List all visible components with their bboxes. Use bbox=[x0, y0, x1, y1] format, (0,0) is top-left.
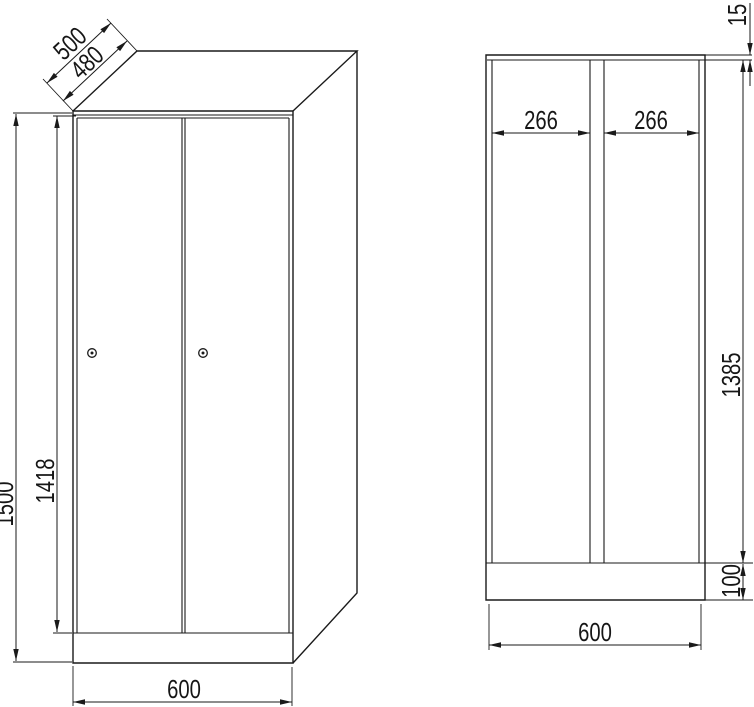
dim-interior-height-label: 1385 bbox=[717, 352, 746, 397]
section-view: 266 266 15 1385 100 600 bbox=[486, 3, 753, 650]
height-extension-lines bbox=[13, 113, 72, 662]
dim-width-perspective-group: 600 bbox=[73, 666, 292, 706]
dim-interior-height-group: 1385 bbox=[717, 60, 746, 563]
perspective-view: 500 480 1500 1418 600 bbox=[0, 19, 357, 706]
dim-width-section-label: 600 bbox=[578, 618, 612, 647]
section-outer-box bbox=[486, 55, 705, 600]
dim-compartment-right-group: 266 bbox=[604, 106, 699, 135]
right-door-edges bbox=[185, 118, 289, 633]
cabinet-right-side-face bbox=[293, 51, 357, 663]
cabinet-front-face bbox=[73, 111, 293, 663]
dim-plinth-height-label: 100 bbox=[717, 564, 746, 598]
dim-compartment-right-label: 266 bbox=[634, 106, 668, 135]
dim-compartment-left-group: 266 bbox=[492, 106, 590, 135]
locker-drawing-svg: 500 480 1500 1418 600 bbox=[0, 0, 754, 707]
section-center-divider bbox=[590, 60, 604, 563]
dim-width-perspective-label: 600 bbox=[167, 675, 201, 704]
technical-drawing-canvas: 500 480 1500 1418 600 bbox=[0, 0, 754, 707]
dim-width-section-group: 600 bbox=[489, 604, 701, 650]
left-door-edges bbox=[77, 118, 182, 633]
dim-compartment-left-label: 266 bbox=[524, 106, 558, 135]
dim-total-height-label: 1500 bbox=[0, 481, 19, 526]
cabinet-top-face bbox=[73, 51, 357, 111]
dim-door-height-group: 1418 bbox=[31, 116, 76, 633]
dim-door-height-label: 1418 bbox=[31, 458, 60, 503]
lock-icon-right-door bbox=[199, 349, 208, 358]
dim-total-height-group: 1500 bbox=[0, 113, 72, 662]
dim-top-thickness-group: 15 bbox=[723, 3, 752, 86]
dim-plinth-height-group: 100 bbox=[717, 564, 746, 600]
dim-top-thickness-label: 15 bbox=[723, 4, 752, 27]
lock-icon-left-door bbox=[88, 349, 97, 358]
